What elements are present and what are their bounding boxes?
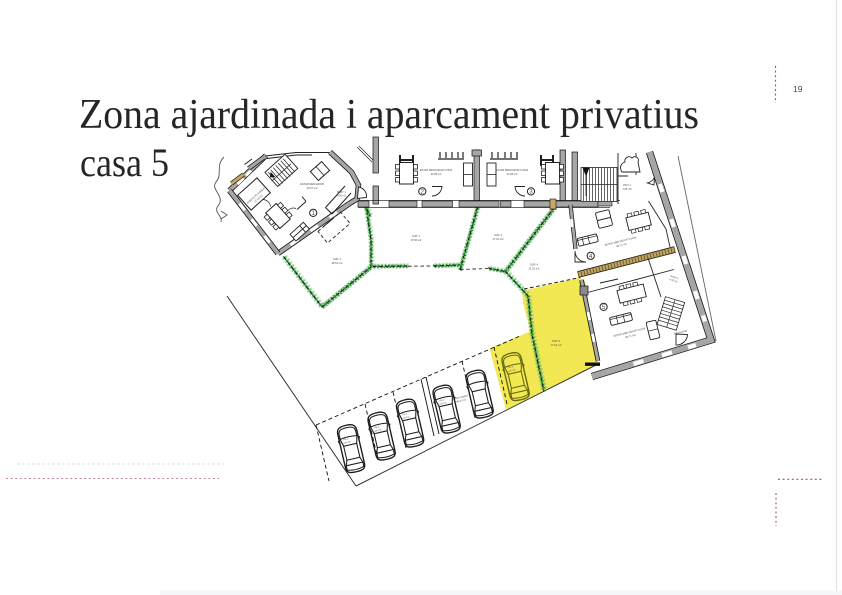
svg-text:28.51 m2: 28.51 m2	[332, 261, 343, 265]
svg-text:47.06 m2: 47.06 m2	[411, 238, 422, 242]
svg-text:SUP. 1: SUP. 1	[333, 257, 341, 261]
svg-text:ESTAR MENJADOR CUINA: ESTAR MENJADOR CUINA	[420, 168, 453, 172]
svg-text:SUP. 2: SUP. 2	[412, 234, 420, 238]
svg-text:21.01 m2: 21.01 m2	[529, 267, 540, 271]
svg-text:77.91 m2: 77.91 m2	[551, 343, 562, 347]
svg-text:SUP. 5: SUP. 5	[552, 339, 560, 343]
svg-text:27.91 m2: 27.91 m2	[493, 237, 504, 241]
svg-text:SUP. 4: SUP. 4	[530, 263, 538, 267]
svg-text:24.05 m2: 24.05 m2	[507, 172, 518, 176]
svg-text:PATI 1: PATI 1	[623, 183, 631, 187]
svg-text:24.05 m2: 24.05 m2	[431, 172, 442, 176]
svg-text:Zona ajardinada i aparcament p: Zona ajardinada i aparcament privatius	[79, 92, 699, 138]
svg-text:7.05 m2: 7.05 m2	[622, 187, 632, 191]
svg-text:ESTAR MENJADOR: ESTAR MENJADOR	[300, 182, 324, 186]
svg-text:19: 19	[793, 84, 803, 94]
svg-text:casa 5: casa 5	[80, 140, 169, 185]
svg-text:ESTAR MENJADOR CUINA: ESTAR MENJADOR CUINA	[496, 168, 529, 172]
svg-text:20.07 m2: 20.07 m2	[307, 186, 318, 190]
svg-text:SUP. 3: SUP. 3	[494, 233, 502, 237]
svg-text:4.95 m2: 4.95 m2	[337, 194, 346, 197]
